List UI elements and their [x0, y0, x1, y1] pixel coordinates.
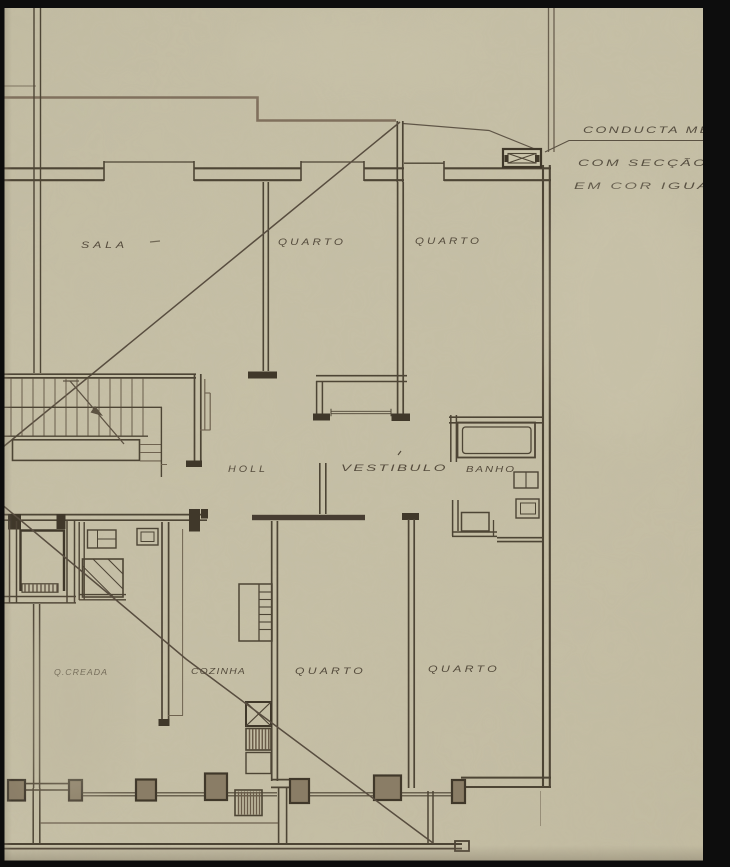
- svg-text:QUARTO: QUARTO: [428, 664, 500, 675]
- svg-text:BANHO: BANHO: [466, 464, 516, 474]
- svg-text:VESTIBULO: VESTIBULO: [341, 463, 448, 473]
- svg-text:COZINHA: COZINHA: [191, 666, 246, 676]
- svg-text:QUARTO: QUARTO: [278, 237, 346, 248]
- svg-text:QUARTO: QUARTO: [415, 236, 482, 247]
- svg-text:HOLL: HOLL: [228, 464, 268, 474]
- svg-text:QUARTO: QUARTO: [295, 666, 366, 677]
- svg-text:SALA: SALA: [81, 240, 128, 251]
